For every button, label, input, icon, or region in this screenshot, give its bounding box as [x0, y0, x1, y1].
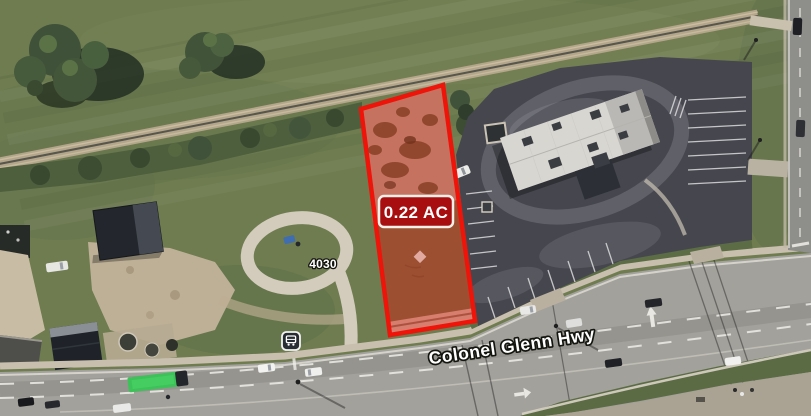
bus-stop-icon[interactable] [282, 332, 300, 350]
address-label: 4030 [309, 257, 337, 271]
parcel-area-label: 0.22 AC [379, 196, 453, 227]
area-label-text: 0.22 AC [384, 203, 449, 222]
aerial-map[interactable]: 4030 Colonel Glenn Hwy 0.22 AC [0, 0, 811, 416]
